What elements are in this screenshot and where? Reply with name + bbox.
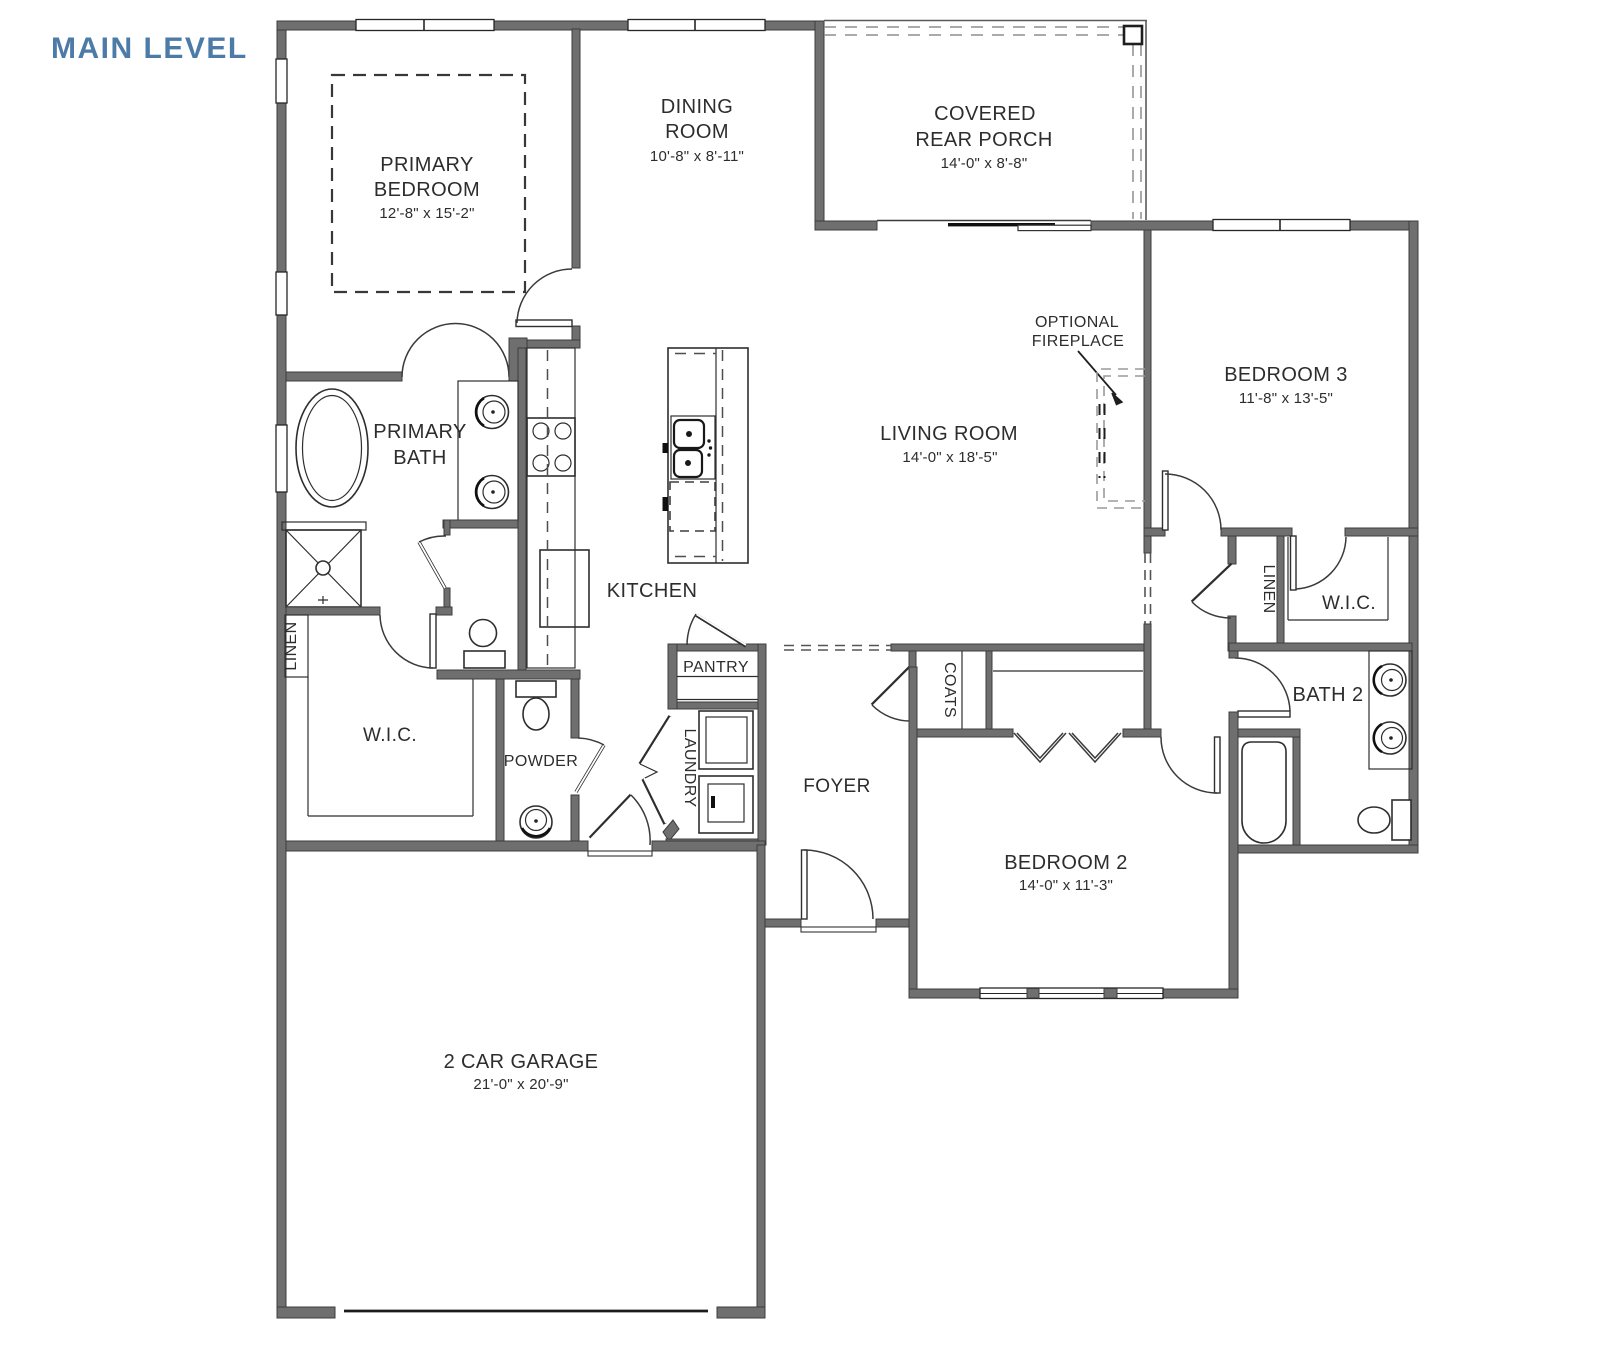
svg-text:BEDROOM 2: BEDROOM 2	[1004, 852, 1128, 874]
svg-text:KITCHEN: KITCHEN	[607, 580, 698, 602]
svg-text:PRIMARY: PRIMARY	[373, 421, 467, 443]
svg-text:LINEN: LINEN	[1260, 564, 1277, 613]
svg-text:11'-8" x 13'-5": 11'-8" x 13'-5"	[1239, 390, 1333, 407]
svg-text:LIVING ROOM: LIVING ROOM	[880, 423, 1018, 445]
svg-text:2 CAR GARAGE: 2 CAR GARAGE	[444, 1051, 599, 1073]
svg-text:14'-0" x 8'-8": 14'-0" x 8'-8"	[941, 155, 1028, 172]
svg-text:21'-0" x 20'-9": 21'-0" x 20'-9"	[473, 1076, 568, 1093]
svg-text:PRIMARY: PRIMARY	[380, 154, 474, 176]
svg-text:LINEN: LINEN	[283, 621, 300, 670]
svg-text:OPTIONAL: OPTIONAL	[1035, 314, 1119, 331]
svg-text:12'-8" x 15'-2": 12'-8" x 15'-2"	[379, 205, 474, 222]
svg-text:ROOM: ROOM	[665, 121, 729, 143]
svg-text:FOYER: FOYER	[803, 776, 870, 797]
svg-text:PANTRY: PANTRY	[683, 659, 749, 676]
svg-text:10'-8" x 8'-11": 10'-8" x 8'-11"	[650, 148, 744, 165]
svg-text:W.I.C.: W.I.C.	[363, 725, 417, 746]
svg-text:DINING: DINING	[661, 96, 733, 118]
svg-text:14'-0" x 11'-3": 14'-0" x 11'-3"	[1019, 877, 1113, 894]
svg-text:COVERED: COVERED	[934, 103, 1036, 125]
svg-text:BATH: BATH	[393, 447, 446, 469]
svg-text:14'-0" x 18'-5": 14'-0" x 18'-5"	[902, 449, 997, 466]
svg-text:MAIN LEVEL: MAIN LEVEL	[51, 32, 248, 65]
svg-text:W.I.C.: W.I.C.	[1322, 593, 1376, 614]
svg-text:FIREPLACE: FIREPLACE	[1032, 333, 1125, 350]
svg-text:COATS: COATS	[941, 662, 958, 718]
svg-text:BATH 2: BATH 2	[1293, 684, 1364, 706]
svg-text:BEDROOM: BEDROOM	[374, 179, 480, 201]
svg-text:POWDER: POWDER	[504, 753, 578, 770]
svg-text:REAR PORCH: REAR PORCH	[915, 129, 1052, 151]
svg-text:BEDROOM 3: BEDROOM 3	[1224, 364, 1348, 386]
svg-text:LAUNDRY: LAUNDRY	[681, 729, 698, 808]
